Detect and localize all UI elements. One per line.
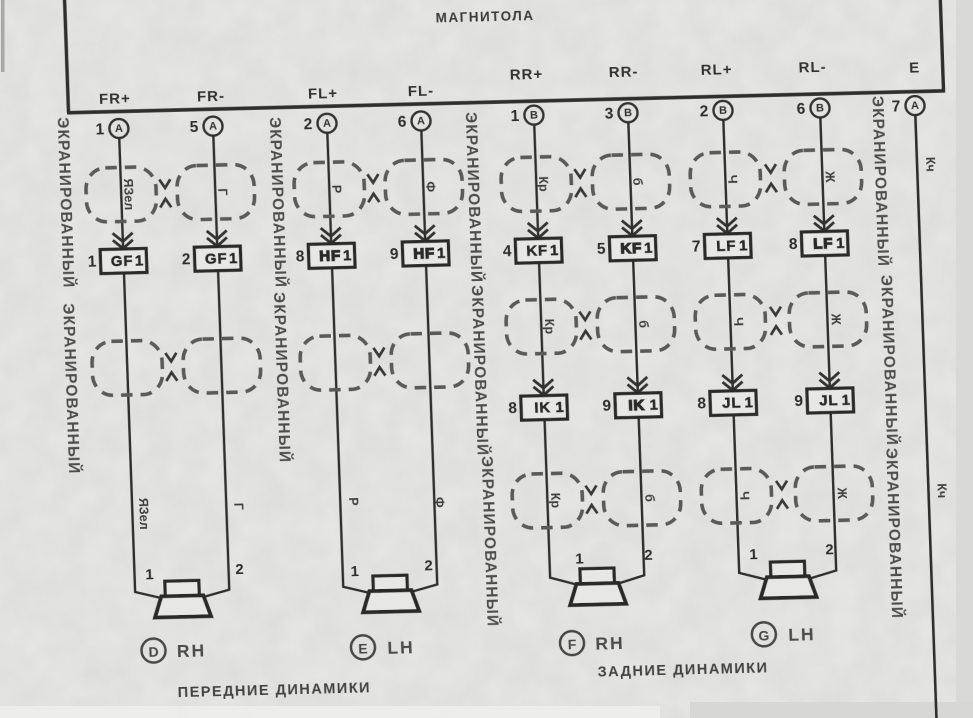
svg-text:1: 1: [744, 394, 753, 411]
svg-text:9: 9: [390, 246, 400, 263]
svg-text:B: B: [719, 105, 727, 117]
svg-text:Р: Р: [329, 185, 343, 194]
svg-text:A: A: [209, 121, 217, 133]
svg-text:1: 1: [343, 247, 352, 264]
svg-text:Р: Р: [346, 497, 360, 506]
svg-text:8: 8: [296, 248, 306, 265]
svg-text:FL-: FL-: [408, 83, 435, 101]
svg-text:б: б: [630, 178, 644, 186]
svg-text:2: 2: [424, 557, 433, 574]
svg-text:б: б: [642, 494, 656, 502]
svg-text:RR+: RR+: [509, 66, 543, 84]
svg-text:1: 1: [555, 399, 564, 416]
svg-text:9: 9: [602, 398, 612, 415]
svg-text:б: б: [636, 320, 650, 328]
svg-text:FL+: FL+: [308, 85, 339, 103]
svg-text:2: 2: [182, 251, 191, 268]
svg-text:2: 2: [825, 541, 834, 558]
svg-text:Ф: Ф: [432, 497, 446, 508]
svg-text:4: 4: [503, 243, 513, 260]
svg-text:IK: IK: [628, 397, 645, 414]
svg-text:A: A: [115, 123, 123, 135]
svg-text:RR-: RR-: [608, 63, 638, 81]
svg-text:ЯЗел: ЯЗел: [121, 178, 136, 210]
svg-text:1: 1: [649, 397, 658, 414]
svg-text:HF: HF: [319, 248, 341, 266]
svg-text:RL+: RL+: [700, 61, 732, 79]
svg-text:9: 9: [794, 393, 804, 410]
svg-text:1: 1: [510, 108, 520, 125]
svg-text:Ж: Ж: [822, 170, 836, 183]
svg-text:KF: KF: [526, 242, 548, 260]
svg-text:1: 1: [350, 563, 359, 580]
svg-text:8: 8: [508, 400, 518, 417]
svg-text:1: 1: [550, 242, 559, 259]
svg-text:1: 1: [739, 237, 748, 254]
svg-text:2: 2: [699, 103, 708, 120]
svg-text:Кр: Кр: [548, 493, 563, 509]
svg-text:FR+: FR+: [99, 90, 131, 108]
svg-text:2: 2: [303, 116, 312, 133]
svg-text:A: A: [911, 100, 919, 112]
svg-text:5: 5: [597, 241, 607, 258]
svg-text:1: 1: [644, 240, 653, 257]
svg-text:FR-: FR-: [197, 88, 226, 106]
svg-text:Ч: Ч: [725, 175, 739, 184]
svg-text:RH: RH: [177, 640, 207, 661]
svg-text:2: 2: [235, 561, 244, 578]
svg-text:RL-: RL-: [798, 59, 827, 77]
svg-text:6: 6: [796, 101, 806, 118]
svg-text:ЯЗел: ЯЗел: [136, 498, 151, 530]
svg-text:Ж: Ж: [834, 486, 848, 499]
svg-text:D: D: [148, 643, 159, 659]
svg-text:JL: JL: [722, 395, 742, 412]
svg-text:RH: RH: [595, 633, 625, 654]
svg-text:5: 5: [189, 119, 199, 136]
svg-text:1: 1: [145, 566, 154, 583]
svg-text:Ч: Ч: [731, 317, 745, 326]
svg-text:Кч: Кч: [923, 157, 938, 172]
svg-text:KF: KF: [620, 240, 642, 258]
svg-text:Кр: Кр: [536, 176, 551, 192]
svg-text:2: 2: [644, 547, 653, 564]
svg-text:8: 8: [697, 396, 707, 413]
svg-text:1: 1: [95, 121, 105, 138]
svg-text:HF: HF: [413, 245, 435, 263]
svg-text:A: A: [417, 115, 425, 127]
svg-text:A: A: [323, 118, 331, 130]
svg-text:E: E: [358, 640, 368, 656]
svg-text:1: 1: [749, 546, 758, 563]
svg-text:1: 1: [437, 245, 446, 262]
svg-text:LH: LH: [788, 624, 816, 645]
svg-text:JL: JL: [819, 392, 839, 409]
svg-text:B: B: [624, 107, 632, 119]
svg-text:Ч: Ч: [737, 491, 751, 500]
svg-text:Кч: Кч: [934, 483, 949, 498]
svg-text:F: F: [567, 636, 577, 652]
svg-text:1: 1: [229, 250, 238, 267]
svg-text:GF: GF: [111, 253, 134, 271]
svg-text:Кр: Кр: [542, 319, 557, 335]
svg-text:МАГНИТОЛА: МАГНИТОЛА: [435, 8, 534, 25]
svg-text:Г: Г: [231, 503, 245, 510]
svg-text:1: 1: [841, 392, 850, 409]
svg-text:Ж: Ж: [828, 312, 842, 325]
svg-text:Ф: Ф: [423, 181, 437, 192]
svg-text:LF: LF: [813, 235, 834, 252]
svg-text:Г: Г: [215, 188, 229, 195]
svg-text:G: G: [758, 627, 770, 643]
svg-text:LH: LH: [387, 637, 415, 658]
svg-text:1: 1: [836, 235, 845, 252]
svg-text:3: 3: [604, 106, 614, 123]
svg-text:B: B: [530, 110, 538, 122]
svg-text:1: 1: [575, 550, 584, 567]
svg-text:7: 7: [891, 98, 900, 115]
svg-text:IK: IK: [534, 399, 551, 416]
svg-text:7: 7: [692, 239, 701, 256]
svg-text:LF: LF: [716, 238, 737, 255]
svg-text:6: 6: [397, 114, 407, 131]
svg-text:B: B: [816, 102, 824, 114]
svg-text:E: E: [909, 59, 921, 76]
svg-text:8: 8: [789, 236, 799, 253]
svg-text:1: 1: [87, 254, 97, 271]
svg-text:1: 1: [135, 253, 144, 270]
svg-text:GF: GF: [205, 250, 228, 268]
